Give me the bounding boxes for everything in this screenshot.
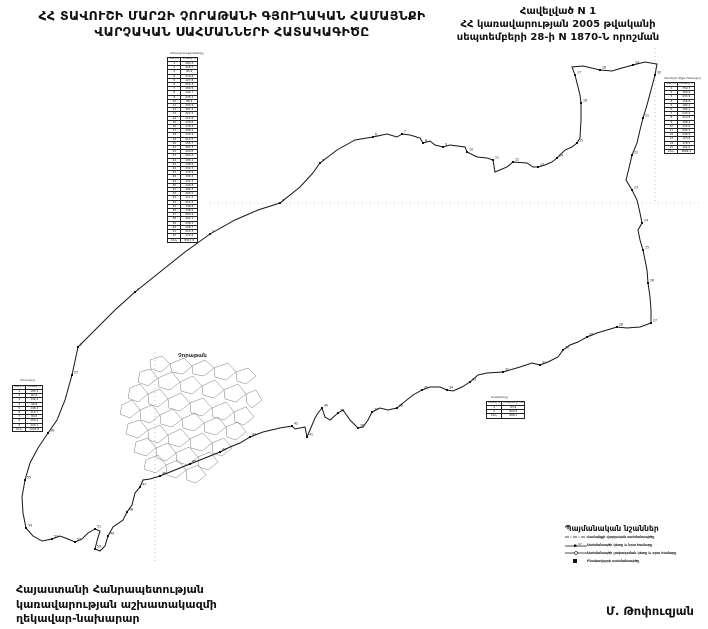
issuer-block: Հայաստանի Հանրապետության կառավարության ա…	[16, 583, 217, 627]
survey-point-marker	[650, 322, 652, 324]
legend-item: Սահմանագծի չափագրման կետը և դրա համարը	[565, 549, 705, 557]
survey-point-number: 39	[340, 409, 344, 413]
legend-symbol-dashdot	[565, 534, 587, 540]
survey-point-marker	[291, 425, 293, 427]
village-parcel	[140, 405, 160, 423]
survey-point-number: 52	[77, 538, 81, 542]
survey-point-marker	[189, 463, 191, 465]
legend-items: Համայնքի վարչական սահմանագիծը17Սահմանագծ…	[565, 533, 705, 565]
legend-symbol-square	[565, 558, 587, 564]
survey-point-marker	[319, 162, 321, 164]
survey-point-marker	[321, 407, 323, 409]
survey-point-marker	[574, 74, 576, 76]
survey-point-marker	[306, 436, 308, 438]
survey-point-marker	[209, 233, 211, 235]
survey-point-number: 54	[28, 524, 32, 528]
survey-point-number: 21	[645, 114, 649, 118]
village-parcel	[128, 384, 148, 402]
survey-point-number: 48	[129, 508, 133, 512]
village-parcel	[160, 409, 182, 427]
survey-point-marker	[580, 102, 582, 104]
survey-point-number: 53	[54, 535, 58, 539]
survey-point-marker	[401, 133, 403, 135]
survey-point-number: 23	[634, 186, 638, 190]
village-parcel	[246, 390, 262, 408]
survey-point-marker	[71, 374, 73, 376]
survey-point-number: 56	[50, 429, 54, 433]
survey-point-number: 45	[192, 460, 196, 464]
survey-point-number: 40	[324, 404, 328, 408]
legend: Պայմանական նշաններ Համայնքի վարչական սահ…	[565, 524, 705, 565]
village-parcel	[134, 438, 156, 456]
survey-point-number: 46	[162, 472, 166, 476]
survey-point-number: 43	[252, 433, 256, 437]
village-parcel	[214, 363, 236, 380]
survey-point-number: 30	[565, 346, 569, 350]
survey-point-number: 5	[322, 159, 324, 163]
village-parcel	[190, 398, 212, 416]
village-parcel	[148, 389, 168, 407]
survey-point-number: 20	[657, 71, 661, 75]
survey-point-number: 38	[360, 424, 364, 428]
survey-point-marker	[616, 326, 618, 328]
village-parcel	[198, 452, 218, 470]
survey-point-marker	[631, 189, 633, 191]
document-title-line2: ՎԱՐՉԱԿԱՆ ՍԱՀՄԱՆՆԵՐԻ ՀԱՏԱԿԱԳԻԾԸ	[8, 24, 456, 40]
survey-point-marker	[249, 436, 251, 438]
survey-point-marker	[396, 407, 398, 409]
issuer-line2: կառավարության աշխատակազմի	[16, 598, 217, 613]
survey-point-marker	[556, 157, 558, 159]
survey-point-marker	[576, 142, 578, 144]
table-right-title: Կետերի միջև հեռավոր.	[664, 77, 702, 80]
legend-symbol-dotline	[565, 550, 587, 556]
survey-point-number: 47	[142, 483, 146, 487]
survey-point-marker	[654, 74, 656, 76]
survey-point-number: 25	[645, 246, 649, 250]
survey-point-marker	[139, 486, 141, 488]
village-parcel	[212, 402, 234, 420]
village-parcel	[186, 465, 206, 483]
survey-point-number: 9	[445, 143, 447, 147]
document-title-line1: ՀՀ ՏԱՎՈՒՇԻ ՄԱՐԶԻ ՉՈՐԱԹԱՆԻ ԳՅՈՒՂԱԿԱՆ ՀԱՄԱ…	[8, 8, 456, 24]
annex-line1: Հավելված N 1	[412, 5, 704, 18]
survey-point-marker	[421, 389, 423, 391]
survey-point-number: 16	[583, 99, 587, 103]
survey-point-number: 3	[212, 230, 214, 234]
village-parcel	[156, 443, 176, 461]
survey-point-number: 35	[424, 386, 428, 390]
document-title: ՀՀ ՏԱՎՈՒՇԻ ՄԱՐԶԻ ՉՈՐԱԹԱՆԻ ԳՅՈՒՂԱԿԱՆ ՀԱՄԱ…	[8, 8, 456, 40]
survey-point-marker	[74, 541, 76, 543]
survey-point-marker	[47, 432, 49, 434]
village-parcel	[166, 460, 186, 478]
survey-point-number: 32	[505, 368, 509, 372]
survey-point-marker	[107, 535, 109, 537]
survey-point-number: 36	[399, 404, 403, 408]
survey-point-number: 19	[635, 61, 639, 65]
survey-point-marker	[469, 381, 471, 383]
village-parcel	[170, 358, 192, 374]
survey-point-number: 17	[577, 71, 581, 75]
survey-point-number: 49	[110, 532, 114, 536]
signature-name: Մ. Թոփուզյան	[598, 604, 702, 618]
village-label: Չորաթան	[178, 353, 207, 359]
survey-point-number: 57	[74, 371, 78, 375]
survey-point-marker	[159, 475, 161, 477]
survey-point-marker	[539, 364, 541, 366]
survey-point-marker	[442, 146, 444, 148]
survey-point-number: 34	[449, 386, 453, 390]
survey-point-number: 2	[137, 288, 139, 292]
table-total-row: Ընդ.898.1	[487, 414, 525, 418]
table-left: Կետի NՀեռավ., մ1105.2287.63132.4496.8514…	[12, 385, 43, 432]
village-parcel	[138, 369, 158, 386]
table-right: Կետի NՀեռավ., մ1750.72160.93433.84156.65…	[664, 82, 695, 154]
survey-point-number: 26	[650, 279, 654, 283]
survey-point-marker	[24, 479, 26, 481]
survey-point-number: 37	[374, 408, 378, 412]
legend-item-label: Սահմանագծի չափագրման կետը և դրա համարը	[587, 551, 676, 555]
survey-point-marker	[446, 389, 448, 391]
survey-point-number: 15	[579, 139, 583, 143]
village-parcel	[202, 380, 224, 398]
village-parcel	[158, 372, 180, 390]
survey-point-marker	[512, 161, 514, 163]
survey-point-marker	[94, 528, 96, 530]
survey-point-number: 22	[634, 151, 638, 155]
survey-point-marker	[631, 154, 633, 156]
survey-point-number: 14	[559, 154, 563, 158]
table-left-title: Հեռավոր.	[20, 379, 36, 382]
survey-point-marker	[502, 371, 504, 373]
survey-point-number: 13	[540, 163, 544, 167]
svg-text:17: 17	[578, 542, 582, 546]
village-parcel	[190, 433, 212, 451]
survey-point-marker	[537, 166, 539, 168]
table-tall: Կետի NՀեռավ., մ1163.42218.7395.24310.651…	[167, 57, 198, 243]
survey-point-marker	[25, 527, 27, 529]
survey-point-number: 29	[589, 333, 593, 337]
survey-point-number: 7	[404, 130, 406, 134]
survey-point-number: 1	[80, 343, 82, 347]
survey-point-marker	[126, 511, 128, 513]
survey-point-marker	[371, 411, 373, 413]
survey-point-number: 4	[282, 199, 284, 203]
village-parcel	[180, 376, 202, 394]
survey-point-marker	[94, 548, 96, 550]
table-center-title: Մակերեսը	[491, 396, 508, 399]
village-parcel	[150, 356, 170, 372]
survey-point-marker	[492, 159, 494, 161]
village-parcel	[192, 360, 214, 376]
legend-item-label: Բնակավայրի սահմանագիծը	[587, 559, 639, 563]
survey-point-marker	[77, 346, 79, 348]
survey-point-marker	[586, 336, 588, 338]
survey-point-number: 24	[644, 219, 648, 223]
table-tall-title: Հեռավորությունները	[170, 52, 204, 55]
village-parcel	[148, 425, 168, 443]
survey-point-number: 51	[97, 525, 101, 529]
village-parcel	[224, 384, 246, 402]
legend-title: Պայմանական նշաններ	[565, 524, 705, 533]
survey-point-marker	[641, 222, 643, 224]
survey-point-marker	[647, 282, 649, 284]
legend-item: Համայնքի վարչական սահմանագիծը	[565, 533, 705, 541]
survey-point-number: 18	[602, 66, 606, 70]
legend-item-label: Սահմանագծի կետը և նրա համարը	[587, 543, 652, 547]
village-parcel	[126, 420, 148, 438]
survey-point-number: 6	[375, 133, 377, 137]
survey-point-number: 8	[425, 139, 427, 143]
issuer-line1: Հայաստանի Հանրապետության	[16, 583, 217, 598]
legend-item: 17Սահմանագծի կետը և նրա համարը	[565, 541, 705, 549]
community-boundary	[22, 62, 657, 551]
table-total-row: Ընդ.1049.8	[13, 427, 43, 431]
legend-item-label: Համայնքի վարչական սահմանագիծը	[587, 535, 654, 539]
survey-point-marker	[632, 64, 634, 66]
survey-point-number: 11	[495, 156, 499, 160]
survey-point-marker	[642, 249, 644, 251]
survey-point-marker	[219, 451, 221, 453]
survey-point-number: 50	[97, 545, 101, 549]
survey-point-marker	[466, 151, 468, 153]
survey-point-number: 10	[469, 148, 473, 152]
annex-line2: ՀՀ կառավարության 2005 թվականի	[412, 18, 704, 31]
survey-point-number: 44	[222, 448, 226, 452]
survey-point-marker	[562, 349, 564, 351]
survey-point-marker	[642, 117, 644, 119]
map-sheet: 1234567891011121314151617181920212223242…	[0, 0, 708, 629]
survey-point-number: 33	[472, 378, 476, 382]
table-total-row: Ընդ.8317.9	[168, 238, 198, 242]
survey-point-marker	[357, 427, 359, 429]
survey-point-marker	[422, 142, 424, 144]
survey-point-number: 27	[653, 319, 657, 323]
survey-point-marker	[134, 291, 136, 293]
table-total-row: Ընդ.3699.1	[665, 150, 695, 154]
survey-point-number: 31	[542, 361, 546, 365]
survey-point-marker	[599, 69, 601, 71]
survey-point-marker	[337, 412, 339, 414]
annex-line3: սեպտեմբերի 28-ի N 1870-Ն որոշման	[412, 31, 704, 44]
table-center: Հատվ. NՄակերեսը, հա193.62804.5Ընդ.898.1	[486, 401, 525, 419]
village-parcel	[168, 393, 190, 411]
village-parcel	[120, 400, 140, 418]
survey-point-number: 42	[294, 422, 298, 426]
survey-point-marker	[372, 136, 374, 138]
issuer-line3: ղեկավար-նախարար	[16, 612, 217, 627]
survey-point-number: 55	[27, 476, 31, 480]
village-parcel	[168, 429, 190, 447]
annex-note: Հավելված N 1 ՀՀ կառավարության 2005 թվակա…	[412, 5, 704, 44]
survey-point-number: 12	[515, 158, 519, 162]
village-parcel	[236, 368, 256, 384]
legend-item: Բնակավայրի սահմանագիծը	[565, 557, 705, 565]
survey-point-number: 41	[309, 433, 313, 437]
legend-symbol-tickline: 17	[565, 542, 587, 548]
survey-point-marker	[51, 538, 53, 540]
survey-point-number: 28	[619, 323, 623, 327]
survey-point-marker	[279, 202, 281, 204]
